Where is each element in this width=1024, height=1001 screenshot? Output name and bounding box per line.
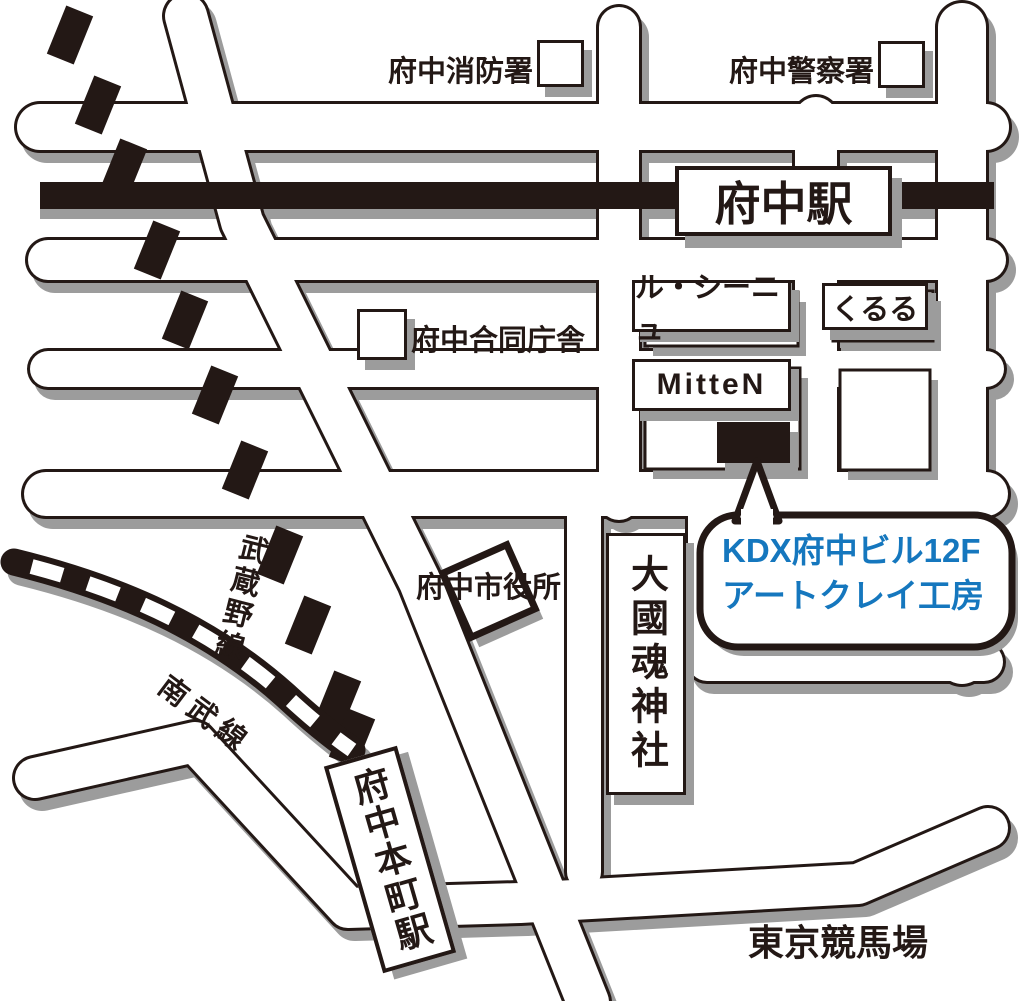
kururu-box: くるる xyxy=(822,283,928,330)
joint-gov-building-label: 府中合同庁舎 xyxy=(411,317,585,359)
fire-station-label: 府中消防署 xyxy=(381,48,533,90)
fuchu-station-box: 府中駅 xyxy=(675,166,892,236)
callout-line2: アートクレイ工房 xyxy=(722,573,984,618)
le-signe-label: ル・シーニュ xyxy=(635,264,788,348)
le-signe-box: ル・シーニュ xyxy=(632,280,791,332)
tokyo-racecourse-label: 東京競馬場 xyxy=(748,914,928,966)
mitten-box: MitteN xyxy=(632,359,791,411)
fuchu-access-map: 府中消防署 府中警察署 府中駅 ル・シーニュ くるる MitteN 府中合同庁舎… xyxy=(0,0,1024,1001)
okunitama-shrine-label: 大國魂神社 xyxy=(619,554,674,774)
joint-gov-building-box xyxy=(357,309,407,360)
mitten-label: MitteN xyxy=(657,368,767,402)
map-canvas xyxy=(0,0,1024,1001)
fuchu-station-label: 府中駅 xyxy=(715,168,853,234)
fire-station-box xyxy=(537,40,584,87)
kururu-label: くるる xyxy=(832,286,918,328)
city-hall-label: 府中市役所 xyxy=(416,564,561,606)
police-station-box xyxy=(878,41,925,88)
callout-line1: KDX府中ビル12F xyxy=(722,528,981,573)
okunitama-shrine-box: 大國魂神社 xyxy=(606,533,686,795)
police-station-label: 府中警察署 xyxy=(721,48,874,90)
